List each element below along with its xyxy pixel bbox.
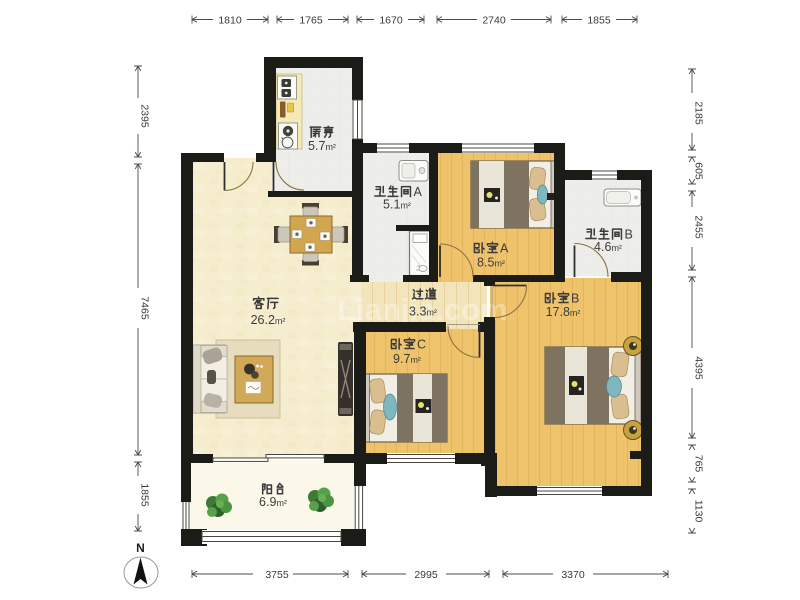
svg-text:N: N <box>136 541 145 555</box>
svg-text:1855: 1855 <box>587 15 611 27</box>
svg-text:7465: 7465 <box>139 296 151 320</box>
svg-text:2740: 2740 <box>482 15 506 27</box>
svg-text:8.5m²: 8.5m² <box>477 256 505 270</box>
svg-text:B: B <box>625 228 633 242</box>
svg-text:C: C <box>417 338 426 352</box>
svg-text:1810: 1810 <box>218 15 242 27</box>
svg-text:5.1m²: 5.1m² <box>383 198 411 212</box>
svg-text:3370: 3370 <box>561 569 585 581</box>
svg-text:B: B <box>571 292 579 306</box>
svg-text:17.8m²: 17.8m² <box>546 305 581 319</box>
svg-text:9.7m²: 9.7m² <box>393 352 421 366</box>
svg-text:2395: 2395 <box>139 104 151 128</box>
svg-text:3.3m²: 3.3m² <box>409 305 437 319</box>
svg-text:A: A <box>500 242 509 256</box>
svg-text:A: A <box>414 185 423 199</box>
svg-text:1765: 1765 <box>299 15 323 27</box>
svg-text:26.2m²: 26.2m² <box>251 313 286 327</box>
svg-text:4.6m²: 4.6m² <box>594 240 622 254</box>
svg-text:605: 605 <box>693 162 705 180</box>
svg-text:3755: 3755 <box>265 569 289 581</box>
svg-text:1855: 1855 <box>139 483 151 507</box>
svg-text:2455: 2455 <box>693 215 705 239</box>
svg-text:2185: 2185 <box>693 101 705 125</box>
svg-text:2995: 2995 <box>414 569 438 581</box>
svg-text:1670: 1670 <box>379 15 403 27</box>
svg-text:1130: 1130 <box>693 500 705 523</box>
svg-text:6.9m²: 6.9m² <box>259 495 287 509</box>
svg-text:4395: 4395 <box>693 356 705 380</box>
svg-text:765: 765 <box>693 455 705 473</box>
svg-text:5.7m²: 5.7m² <box>308 139 336 153</box>
